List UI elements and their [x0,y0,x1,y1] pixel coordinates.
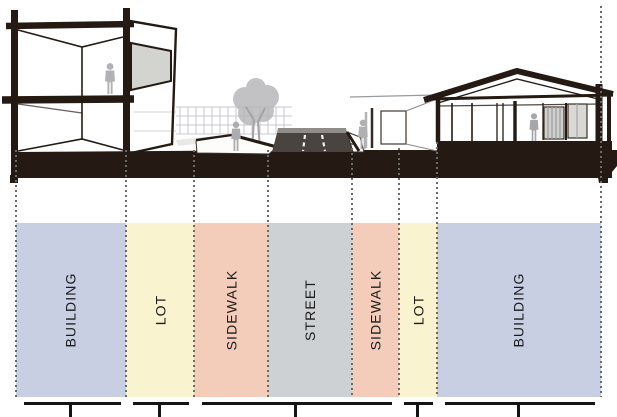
dimension-bracket-lot-left [133,402,189,405]
zone-label: BUILDING [64,272,78,347]
bracket-tick [294,405,297,417]
section-sketch [0,0,617,192]
zone-sidewalk-right: SIDEWALK [352,223,399,397]
dimension-bracket-building-left [24,402,121,405]
boundary-dashed-line [15,150,17,397]
zone-label: BUILDING [512,272,526,347]
boundary-dashed-line [351,143,353,397]
boundary-dashed-line [600,6,602,397]
dimension-bracket-street [202,402,392,405]
zone-label: SIDEWALK [224,270,238,351]
bracket-tick [517,405,520,417]
right-building-plinth [437,141,612,178]
dimension-bracket-lot-right [404,402,433,405]
boundary-dashed-line [398,148,400,397]
street-road-sketch [272,128,353,152]
zone-building-right: BUILDING [437,223,601,397]
zone-sidewalk-left: SIDEWALK [194,223,268,397]
dimension-bracket-building-right [445,402,595,405]
street-section-diagram: BUILDING LOT SIDEWALK STREET SIDEWALK LO… [0,0,617,417]
zone-lot-right: LOT [399,223,437,397]
pedestrian-figure [105,63,115,94]
zone-building-left: BUILDING [16,223,126,397]
bracket-tick [416,405,419,417]
bracket-tick [158,405,161,417]
pedestrian-figure [530,113,539,141]
boundary-dashed-line [267,150,269,397]
zone-label: STREET [303,279,317,341]
zone-label: LOT [411,295,425,326]
zone-label: SIDEWALK [369,270,383,351]
bracket-tick [69,405,72,417]
left-building-panel [131,43,171,90]
zone-lot-left: LOT [126,223,194,397]
boundary-dashed-line [193,150,195,397]
zone-label: LOT [153,295,167,326]
boundary-dashed-line [125,150,127,397]
boundary-dashed-line [436,142,438,397]
zone-street: STREET [268,223,352,397]
